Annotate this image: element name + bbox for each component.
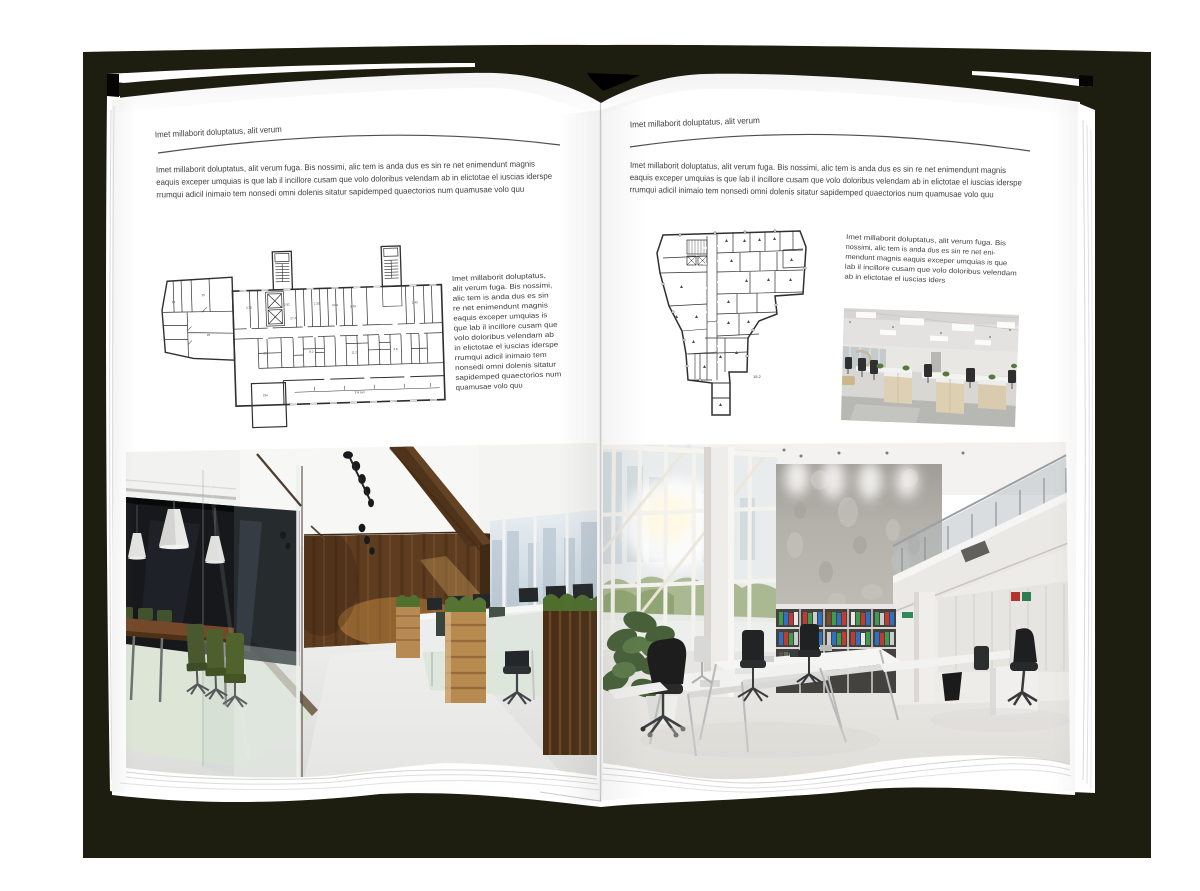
svg-text:25: 25 — [202, 293, 206, 297]
svg-text:1.45: 1.45 — [412, 300, 418, 304]
svg-text:28: 28 — [172, 300, 176, 304]
svg-text:8.2: 8.2 — [309, 350, 314, 354]
svg-text:15.2: 15.2 — [753, 374, 762, 379]
svg-text:3.78: 3.78 — [350, 304, 356, 308]
svg-text:26: 26 — [207, 333, 211, 337]
svg-text:29: 29 — [263, 351, 267, 355]
svg-text:2.30: 2.30 — [314, 301, 320, 305]
svg-text:3.09: 3.09 — [332, 303, 338, 307]
svg-text:2.92: 2.92 — [284, 302, 290, 306]
svg-text:2-й зал: 2-й зал — [355, 390, 365, 394]
svg-text:3.75: 3.75 — [246, 306, 252, 310]
svg-text:29a: 29a — [263, 393, 268, 397]
svg-text:4.8: 4.8 — [393, 347, 398, 351]
svg-text:11.2: 11.2 — [351, 350, 357, 354]
svg-text:27.4: 27.4 — [290, 316, 296, 320]
